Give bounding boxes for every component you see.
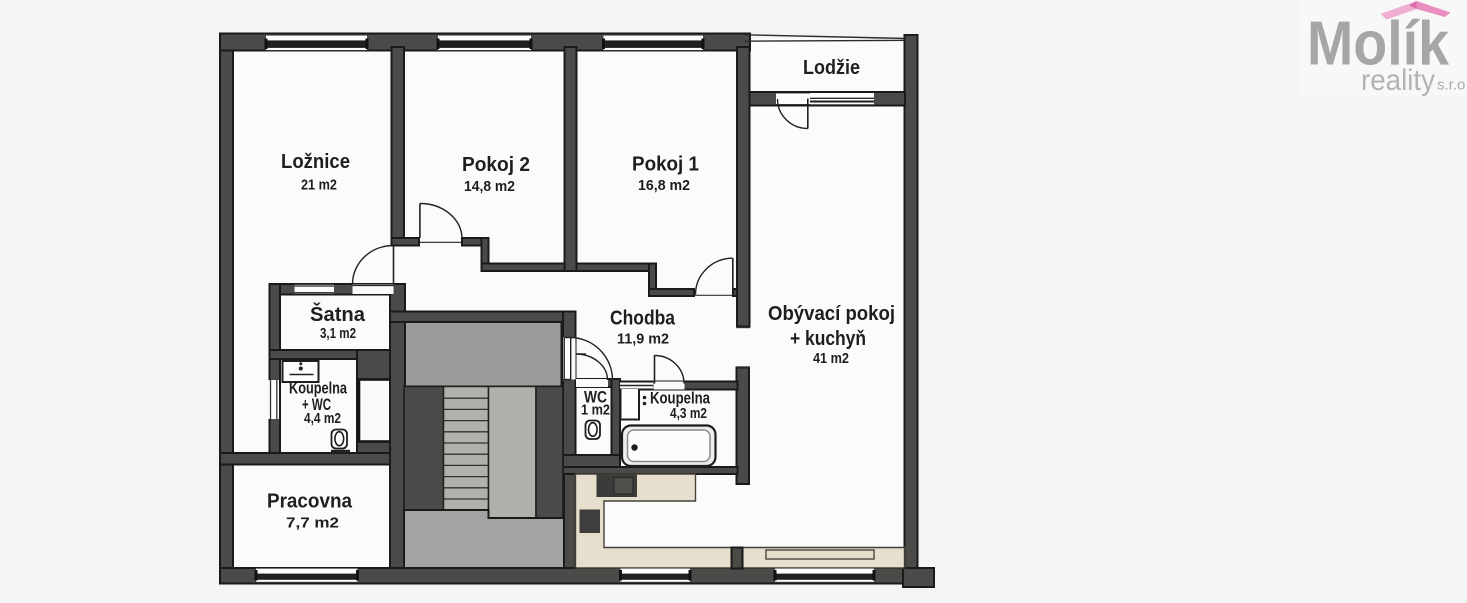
svg-text:41 m2: 41 m2: [813, 350, 849, 367]
svg-text:16,8 m2: 16,8 m2: [638, 177, 690, 194]
svg-text:Pracovna: Pracovna: [267, 491, 353, 513]
svg-text:3,1 m2: 3,1 m2: [320, 325, 356, 342]
svg-text:11,9 m2: 11,9 m2: [617, 331, 669, 348]
svg-text:Chodba: Chodba: [610, 308, 676, 330]
svg-text:+ kuchyň: + kuchyň: [790, 328, 866, 350]
svg-text:Šatna: Šatna: [310, 302, 366, 326]
svg-text:21 m2: 21 m2: [301, 177, 337, 194]
svg-text:7,7 m2: 7,7 m2: [286, 515, 339, 532]
svg-text:14,8 m2: 14,8 m2: [464, 178, 515, 195]
svg-text:4,4 m2: 4,4 m2: [304, 410, 341, 427]
svg-text:reality: reality: [1361, 64, 1435, 97]
svg-text:Pokoj 2: Pokoj 2: [462, 154, 530, 176]
svg-text:1 m2: 1 m2: [581, 402, 610, 419]
svg-text:Pokoj 1: Pokoj 1: [632, 154, 699, 176]
svg-text:Obývací pokoj: Obývací pokoj: [768, 303, 895, 325]
svg-text:s.r.o.: s.r.o.: [1437, 77, 1467, 94]
svg-text:Lodžie: Lodžie: [803, 57, 860, 79]
svg-text:4,3 m2: 4,3 m2: [670, 405, 707, 422]
svg-text:Ložnice: Ložnice: [281, 151, 350, 173]
